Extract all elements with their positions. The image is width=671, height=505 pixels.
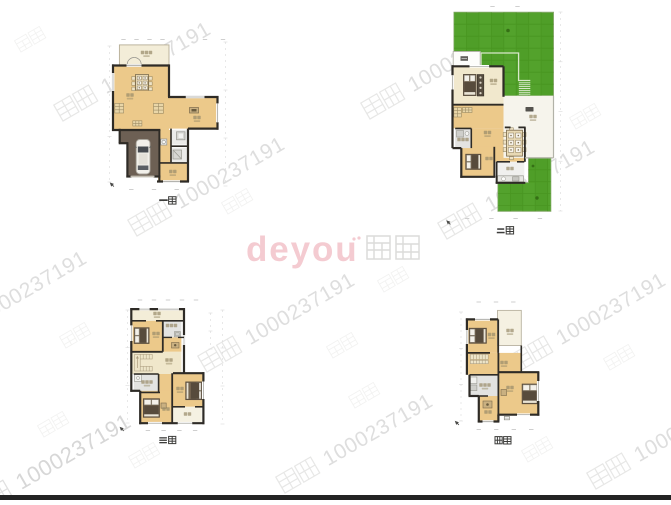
svg-text:deyou: deyou: [246, 230, 359, 269]
